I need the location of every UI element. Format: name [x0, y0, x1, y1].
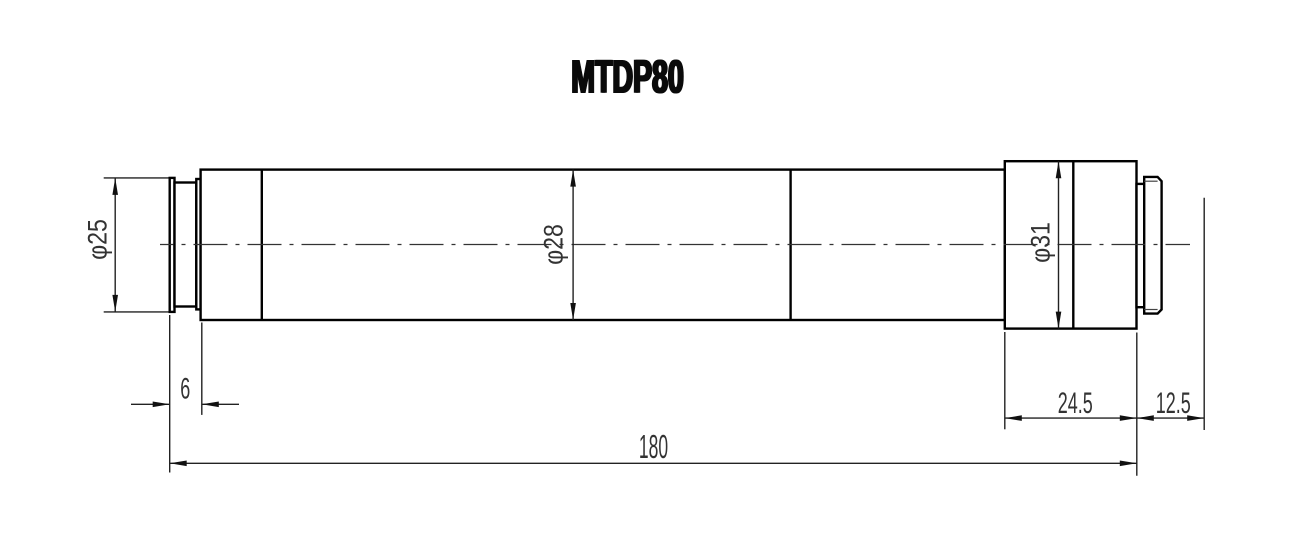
svg-text:φ28: φ28	[539, 224, 569, 265]
svg-text:MTDP80: MTDP80	[572, 52, 685, 104]
svg-text:φ31: φ31	[1026, 222, 1056, 263]
svg-text:24.5: 24.5	[1058, 388, 1093, 421]
svg-text:φ25: φ25	[83, 219, 113, 260]
svg-text:180: 180	[639, 428, 668, 465]
svg-text:6: 6	[180, 373, 190, 406]
svg-text:12.5: 12.5	[1156, 388, 1191, 421]
